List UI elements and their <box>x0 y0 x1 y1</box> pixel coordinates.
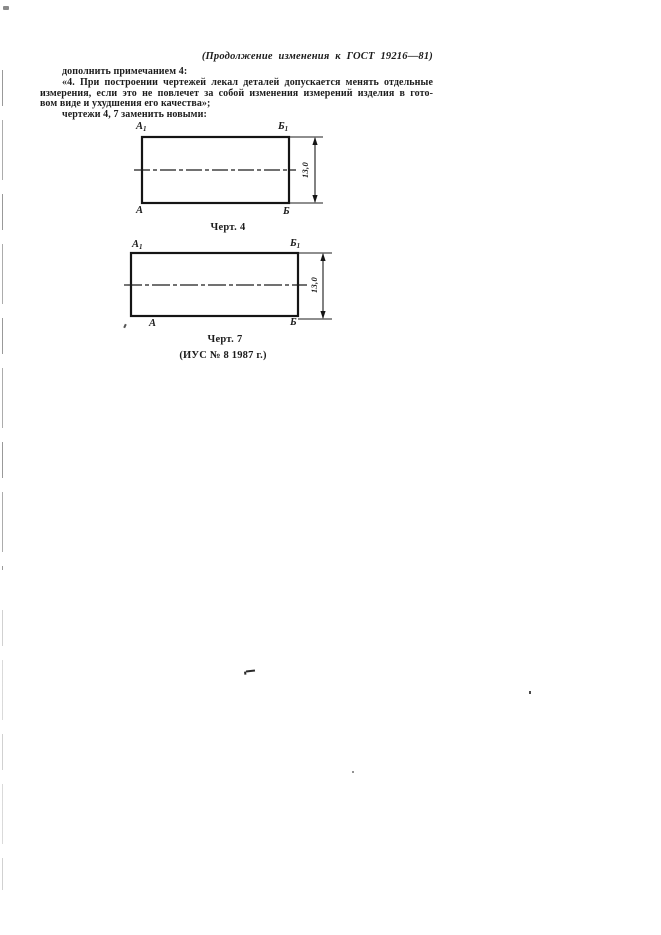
scan-edge-line-artifact-lower <box>2 610 3 890</box>
figure7-label-top-right: Б1 <box>290 238 300 252</box>
body-quote-line-1: «4. При построении чертежей лекал детале… <box>62 77 433 88</box>
scan-smudge-artifact <box>3 6 9 10</box>
figure4-dimension-arrow-down-icon <box>312 195 317 203</box>
figure4-label-top-left-letter: А <box>136 121 143 132</box>
figure4-label-top-right: Б1 <box>278 121 288 135</box>
figure7-caption: Черт. 7 <box>160 334 290 346</box>
scanned-document-page: (Продолжение изменения к ГОСТ 19216—81) … <box>0 0 661 935</box>
figure4-label-top-left: А1 <box>136 121 147 135</box>
figure4-label-top-left-index: 1 <box>143 125 147 133</box>
figure4-label-bottom-left: А <box>136 205 143 216</box>
scan-edge-line-artifact <box>2 70 3 570</box>
figure7-label-top-left: А1 <box>132 239 143 253</box>
figure7-label-top-right-index: 1 <box>297 242 301 250</box>
figure4-label-top-right-index: 1 <box>285 125 289 133</box>
header-note: (Продолжение изменения к ГОСТ 19216—81) <box>40 51 433 62</box>
figure7-label-top-left-letter: А <box>132 239 139 250</box>
figure7-dimension-arrow-down-icon <box>320 311 325 319</box>
figure7-dimension-arrow-up-icon <box>320 253 325 261</box>
body-intro-line: дополнить примечанием 4: <box>62 66 187 77</box>
figure4-caption: Черт. 4 <box>163 222 293 234</box>
figure7-dimension-label: 13,0 <box>309 272 319 298</box>
figure7-label-top-right-letter: Б <box>290 238 297 249</box>
footer-note: (ИУС № 8 1987 г.) <box>123 349 323 362</box>
figure7-label-bottom-right: Б <box>290 317 297 328</box>
body-closing-line: чертежи 4, 7 заменить новыми: <box>62 109 207 120</box>
dot-artifact <box>529 691 531 694</box>
pen-mark-artifact <box>246 669 255 672</box>
body-quote-line-2: измерения, если это не повлечет за собой… <box>40 88 433 99</box>
figure4-dimension-arrow-up-icon <box>312 137 317 145</box>
figure4-dimension-label: 13,0 <box>300 157 310 183</box>
dot-artifact-small <box>352 771 354 773</box>
figure7-label-top-left-index: 1 <box>139 243 143 251</box>
figure4-label-top-right-letter: Б <box>278 121 285 132</box>
figure4-label-bottom-right: Б <box>283 206 290 217</box>
figure7-label-bottom-left: А <box>149 318 156 329</box>
body-quote-line-3: вом виде и ухудшения его качества»; <box>40 98 210 109</box>
